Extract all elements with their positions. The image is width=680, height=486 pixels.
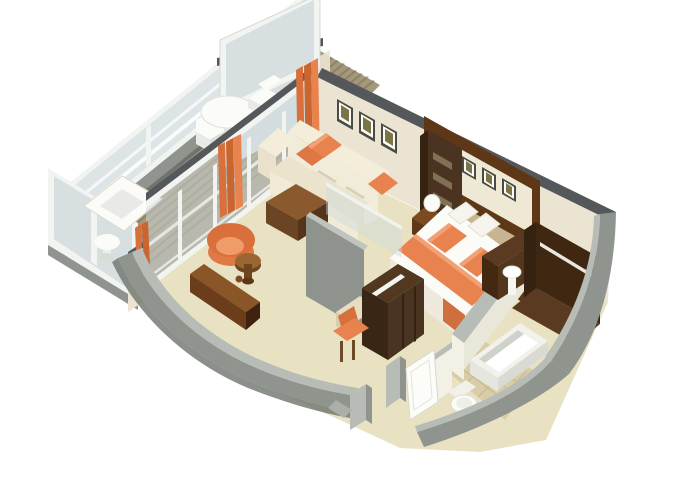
desk-chair-leg — [340, 341, 343, 362]
suite-floorplan — [0, 0, 680, 486]
desk-chair-leg — [352, 340, 355, 360]
tv-cabinet-seam — [402, 293, 404, 349]
floorplan-stage — [0, 0, 680, 486]
sphere-lamp — [424, 195, 440, 212]
side-table-base — [100, 253, 114, 261]
side-table-top — [94, 234, 120, 250]
tub-chair-seat — [216, 237, 244, 255]
table-foot — [236, 276, 243, 283]
mushroom-table-base — [242, 278, 254, 285]
entry-left-jamb-side — [366, 384, 372, 424]
railing-post — [146, 124, 151, 167]
tv-cabinet-seam — [414, 286, 416, 342]
pedestal-sink-stem — [508, 277, 516, 295]
pedestal-sink-bowl — [503, 266, 521, 278]
closet-side-panel — [524, 222, 536, 296]
entry-right-jamb-side — [400, 356, 406, 402]
